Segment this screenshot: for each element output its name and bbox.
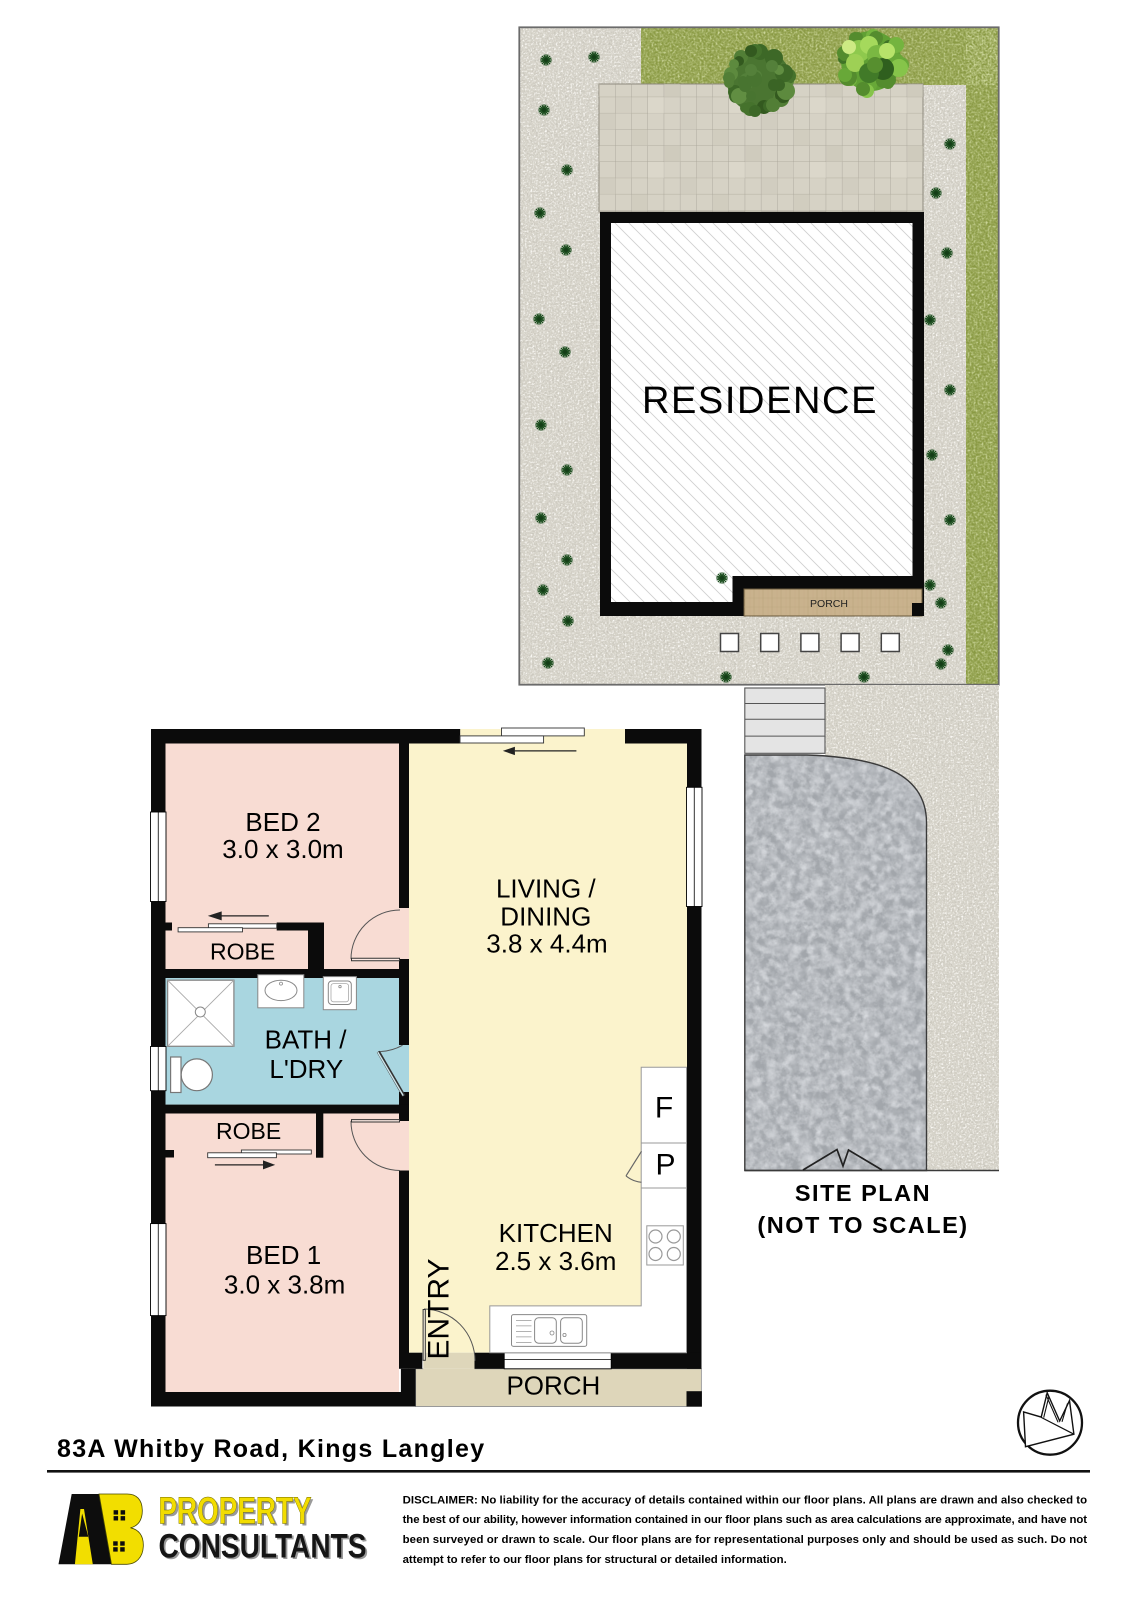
svg-text:LIVING /: LIVING / [496, 874, 596, 904]
svg-text:attempt to refer to our floor: attempt to refer to our floor plans for … [403, 1554, 787, 1566]
svg-text:BED 1: BED 1 [246, 1240, 321, 1270]
svg-text:ROBE: ROBE [216, 1118, 281, 1144]
svg-text:SITE PLAN: SITE PLAN [795, 1180, 931, 1206]
svg-text:F: F [655, 1092, 673, 1125]
svg-text:the best of our ability, howev: the best of our ability, however informa… [403, 1514, 1088, 1526]
svg-text:PROPERTY: PROPERTY [159, 1491, 312, 1533]
svg-text:(NOT TO SCALE): (NOT TO SCALE) [757, 1212, 968, 1238]
svg-text:L'DRY: L'DRY [269, 1054, 343, 1084]
svg-text:PORCH: PORCH [810, 598, 848, 610]
svg-text:PORCH: PORCH [506, 1371, 600, 1401]
svg-text:been surveyed or drawn to scal: been surveyed or drawn to scale. Our flo… [403, 1534, 1088, 1546]
svg-text:DINING: DINING [500, 902, 591, 932]
svg-text:BED 2: BED 2 [245, 807, 320, 837]
svg-text:DISCLAIMER: No liability for t: DISCLAIMER: No liability for the accurac… [403, 1494, 1088, 1506]
svg-text:BATH /: BATH / [265, 1025, 348, 1055]
svg-text:3.8 x 4.4m: 3.8 x 4.4m [486, 929, 607, 959]
svg-text:3.0 x 3.8m: 3.0 x 3.8m [224, 1270, 345, 1300]
svg-text:P: P [655, 1149, 675, 1182]
svg-text:KITCHEN: KITCHEN [499, 1218, 613, 1248]
svg-text:ENTRY: ENTRY [423, 1258, 456, 1359]
svg-text:3.0 x 3.0m: 3.0 x 3.0m [222, 834, 343, 864]
svg-text:RESIDENCE: RESIDENCE [642, 380, 878, 422]
svg-text:2.5 x 3.6m: 2.5 x 3.6m [495, 1246, 616, 1276]
svg-text:ROBE: ROBE [210, 939, 275, 965]
svg-text:CONSULTANTS: CONSULTANTS [159, 1528, 367, 1566]
svg-text:83A Whitby Road, Kings Langley: 83A Whitby Road, Kings Langley [57, 1435, 485, 1463]
